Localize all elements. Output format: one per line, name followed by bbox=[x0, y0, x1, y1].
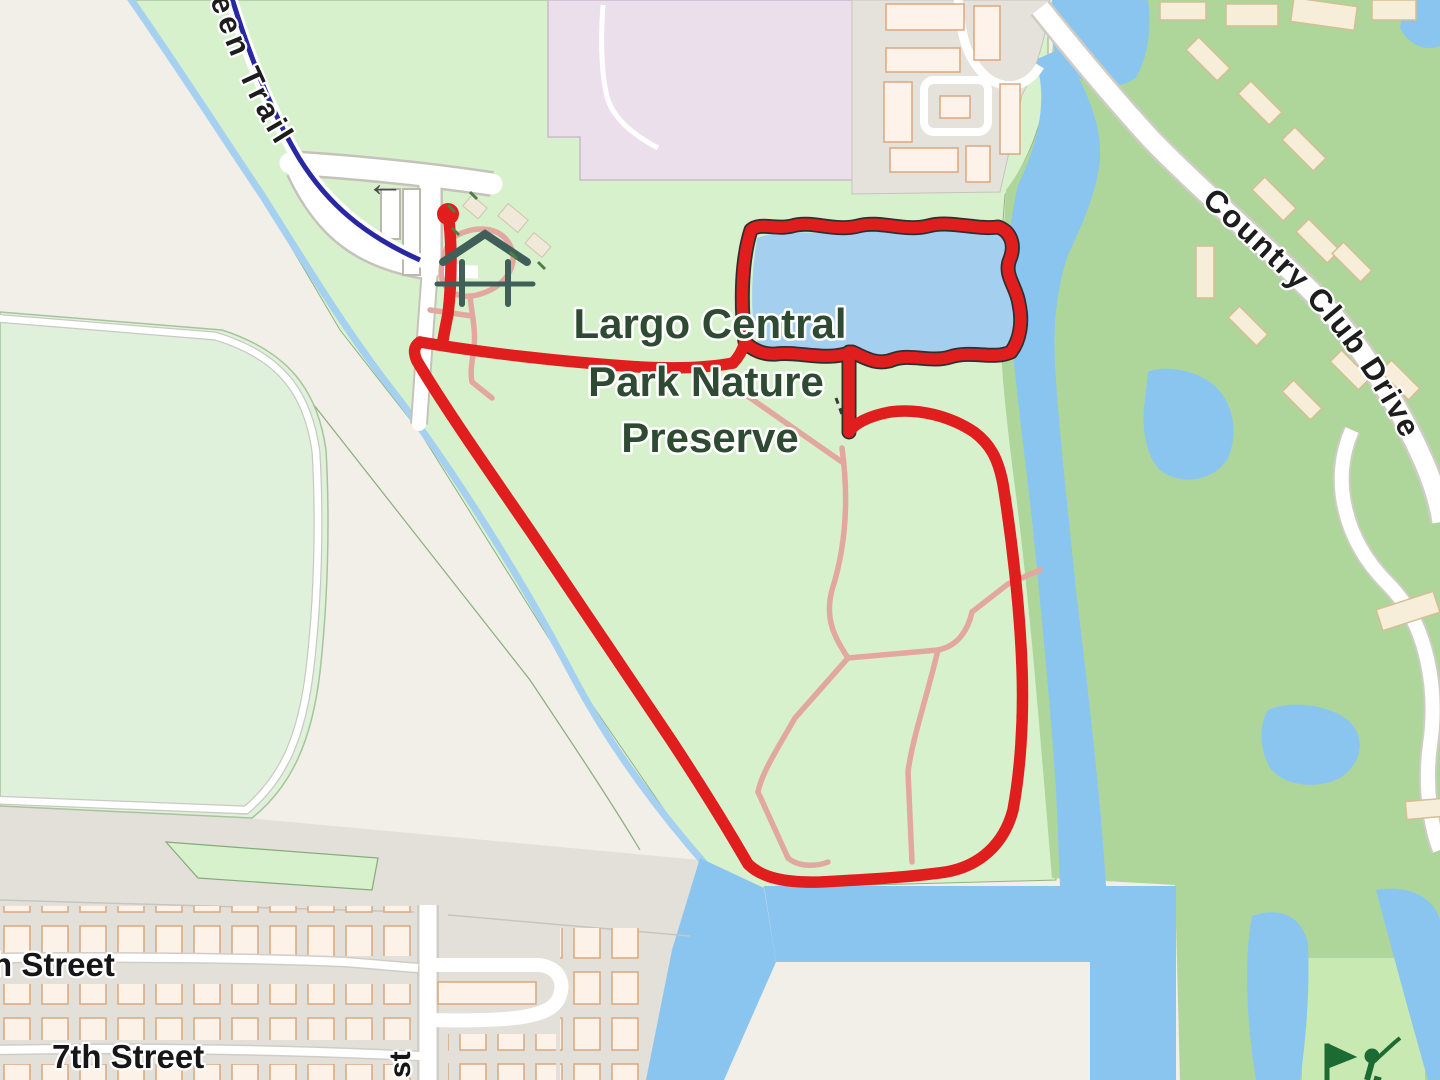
street-7th-label: 7th Street bbox=[52, 1038, 204, 1075]
park-name-line1: Largo Central bbox=[573, 300, 846, 347]
golf-pond-3 bbox=[1247, 912, 1308, 1080]
map-svg: ← Largo Central Park bbox=[0, 0, 1440, 1080]
left-arrow-icon: ← bbox=[366, 163, 404, 205]
park-name-line3: Preserve bbox=[621, 414, 799, 461]
map-canvas[interactable]: ← Largo Central Park bbox=[0, 0, 1440, 1080]
park-name-line2: Park Nature bbox=[588, 358, 824, 405]
street-8th-label: h Street bbox=[0, 946, 115, 983]
street-vertical-label: st bbox=[384, 1051, 417, 1078]
retail-area bbox=[548, 0, 875, 180]
house-row bbox=[0, 984, 414, 1040]
house-row bbox=[448, 1034, 556, 1080]
retail-block bbox=[548, 0, 875, 180]
sports-field-area bbox=[0, 312, 328, 818]
building bbox=[438, 982, 536, 1004]
house-row bbox=[560, 928, 644, 1080]
